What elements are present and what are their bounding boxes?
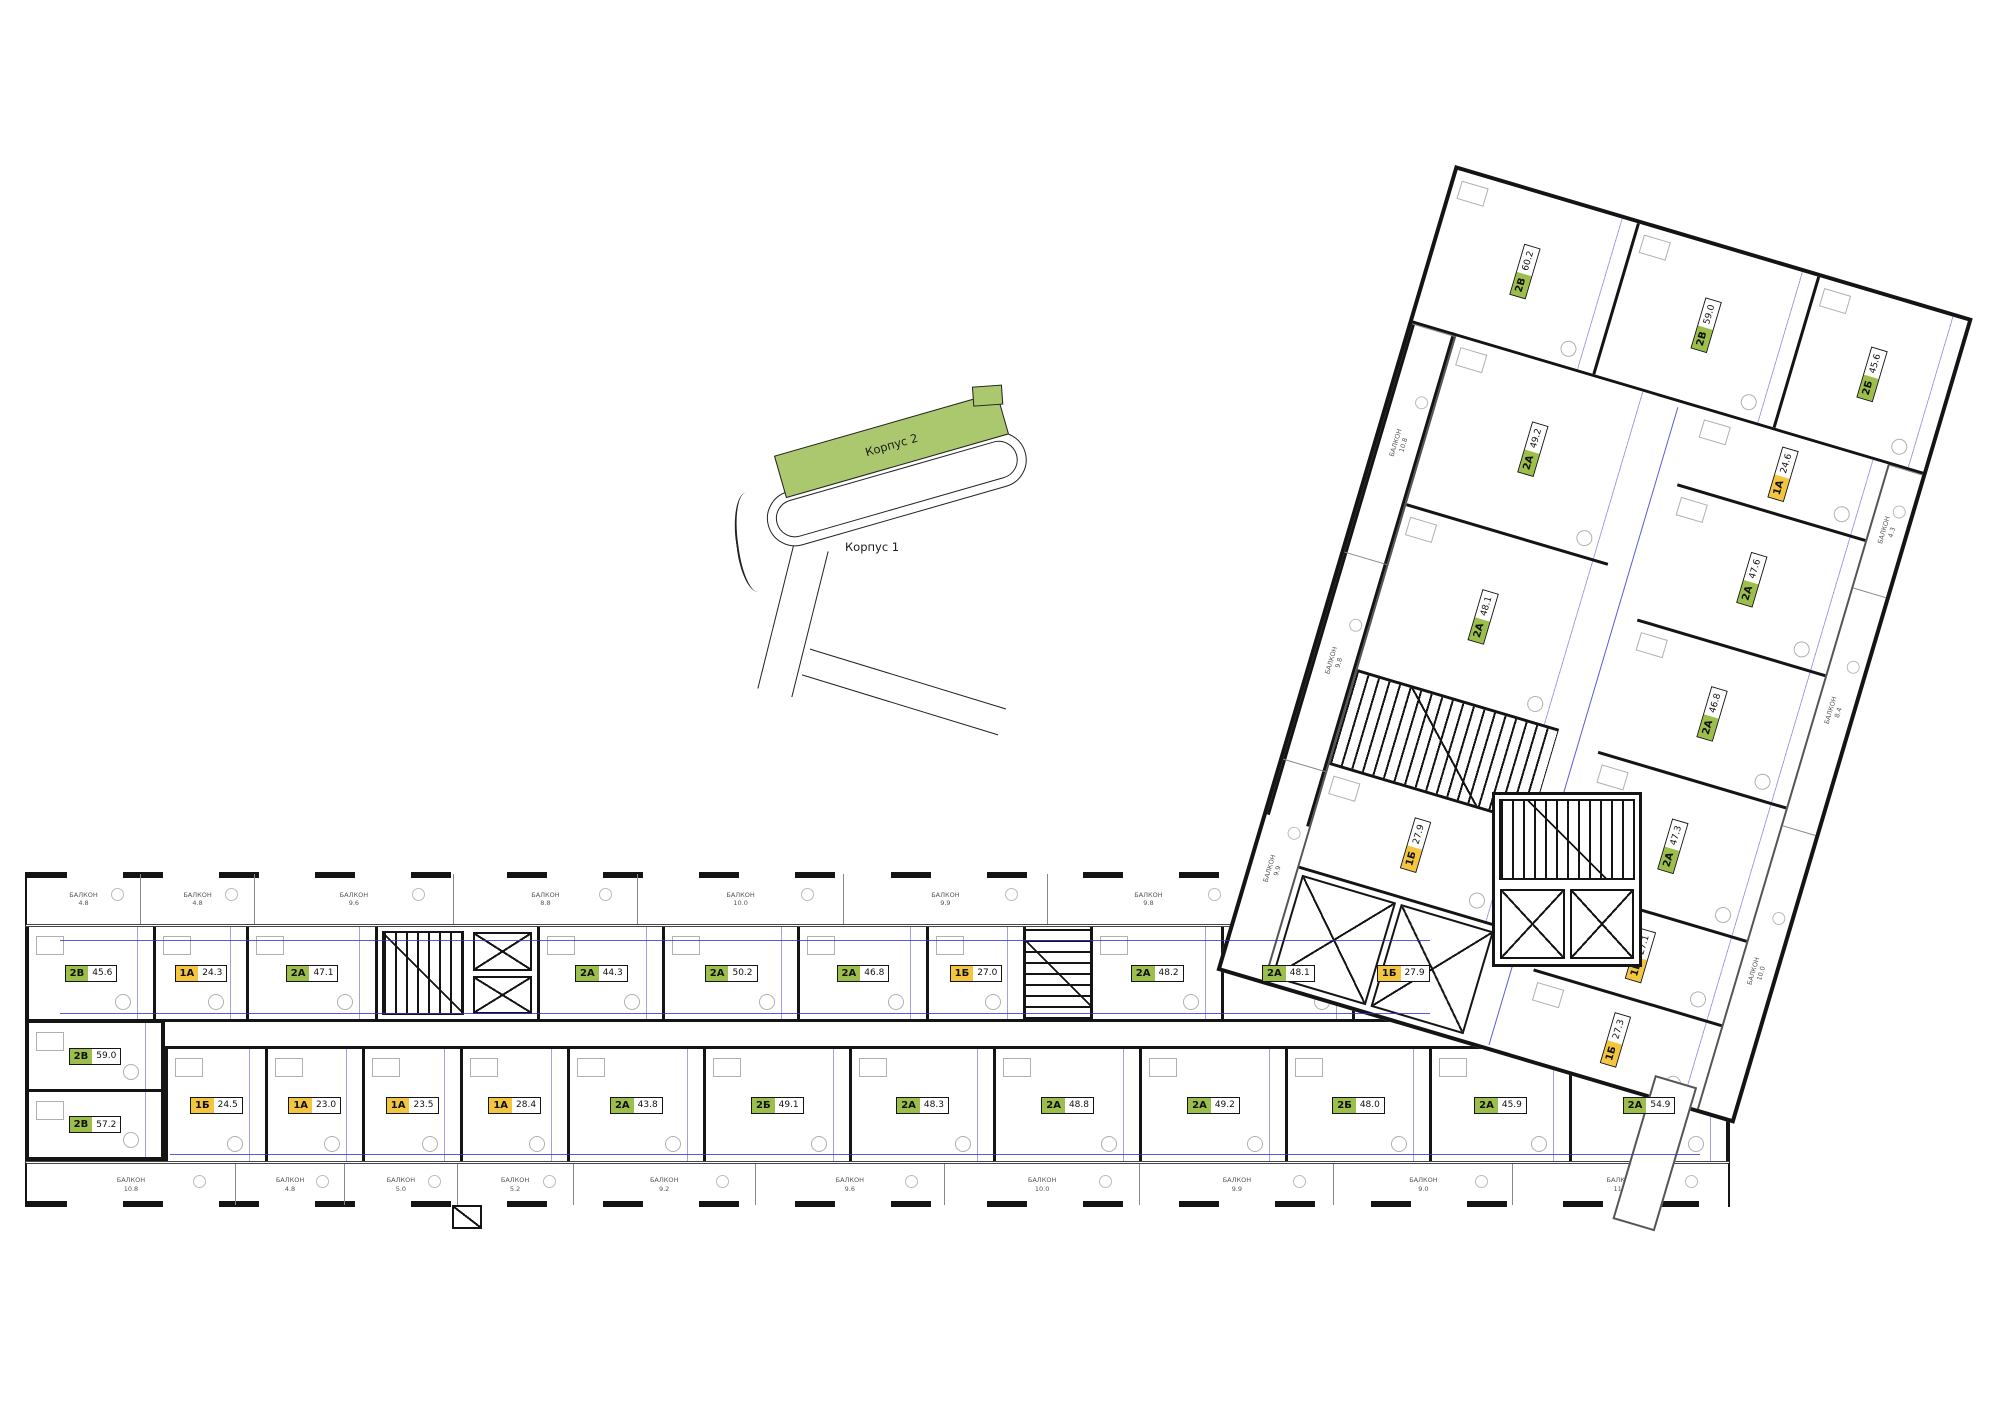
apartment-type-label: 2В xyxy=(66,966,89,981)
apartment-badge: 2А49.2 xyxy=(1188,1098,1239,1113)
apartment-type-label: 2Б xyxy=(1857,375,1878,401)
apartment-area-label: 24.5 xyxy=(214,1098,242,1113)
apartment-type-label: 2А xyxy=(1658,847,1679,873)
korpus-2-label: Корпус 2 xyxy=(864,431,920,459)
apartment-type-label: 2А xyxy=(897,1098,920,1113)
apartment-badge: 1А23.5 xyxy=(387,1098,438,1113)
apartment-badge: 2А48.1 xyxy=(1468,591,1497,644)
apartment-badge: 1Б27.3 xyxy=(1601,1014,1630,1067)
apartment-badge: 1Б27.9 xyxy=(1378,966,1429,981)
balcony-label: БАЛКОН9.0 xyxy=(1409,1176,1437,1192)
apartment-area-label: 48.2 xyxy=(1155,966,1183,981)
korpus-1-label: Корпус 1 xyxy=(845,540,899,554)
apartment-type-label: 2А xyxy=(287,966,310,981)
apartment-area-label: 48.0 xyxy=(1356,1098,1384,1113)
apartment-area-label: 27.9 xyxy=(1407,819,1429,850)
apartment-area-label: 24.3 xyxy=(198,966,226,981)
balcony: БАЛКОН9.9 xyxy=(843,874,1047,924)
elevator-bank xyxy=(1495,884,1639,964)
dimension-line xyxy=(60,940,1430,941)
apartment-badge: 2В45.6 xyxy=(66,966,117,981)
apartment-badge: 1А28.4 xyxy=(489,1098,540,1113)
apartment-area-label: 48.3 xyxy=(920,1098,948,1113)
balcony-label: БАЛКОН9.9 xyxy=(931,891,959,907)
balcony-label: БАЛКОН4.8 xyxy=(276,1176,304,1192)
apartment-type-label: 2В xyxy=(70,1049,93,1064)
apartment-area-label: 23.5 xyxy=(409,1098,437,1113)
apartment-badge: 2Б45.6 xyxy=(1857,348,1886,401)
apartment-unit[interactable]: 1А23.0 xyxy=(265,1049,362,1161)
apartment-area-label: 27.0 xyxy=(973,966,1001,981)
balcony-label: БАЛКОН4.8 xyxy=(183,891,211,907)
apartment-type-label: 2В xyxy=(70,1117,93,1132)
balcony: БАЛКОН4.8 xyxy=(140,874,254,924)
apartment-area-label: 46.8 xyxy=(860,966,888,981)
balcony: БАЛКОН8.8 xyxy=(453,874,638,924)
apartment-badge: 1А23.0 xyxy=(289,1098,340,1113)
apartment-area-label: 46.8 xyxy=(1704,687,1726,718)
elevator[interactable] xyxy=(1570,889,1635,959)
balcony: БАЛКОН5.0 xyxy=(344,1164,457,1205)
balcony-label: БАЛКОН10.0 xyxy=(1745,957,1769,989)
balcony-label: БАЛКОН9.6 xyxy=(340,891,368,907)
apartment-area-label: 47.3 xyxy=(1664,820,1686,851)
balcony-label: БАЛКОН9.6 xyxy=(836,1176,864,1192)
balcony-label: БАЛКОН4.3 xyxy=(1876,515,1900,547)
apartment-area-label: 45.6 xyxy=(1864,348,1886,379)
apartment-type-label: 1Б xyxy=(191,1098,214,1113)
apartment-badge: 2А45.9 xyxy=(1475,1098,1526,1113)
apartment-unit[interactable]: 2А43.8 xyxy=(567,1049,703,1161)
apartment-type-label: 2В xyxy=(1511,272,1532,298)
apartment-badge: 2В59.0 xyxy=(70,1049,121,1064)
staircase[interactable] xyxy=(1499,799,1635,880)
apartment-badge: 2А50.2 xyxy=(706,966,757,981)
balcony: БАЛКОН9.2 xyxy=(573,1164,755,1205)
apartment-area-label: 45.6 xyxy=(88,966,116,981)
apartment-unit[interactable]: 2А48.8 xyxy=(993,1049,1139,1161)
apartment-badge: 1Б27.0 xyxy=(951,966,1002,981)
apartment-area-label: 23.0 xyxy=(312,1098,340,1113)
balcony-label: БАЛКОН9.2 xyxy=(650,1176,678,1192)
apartment-unit[interactable]: 2Б48.0 xyxy=(1285,1049,1429,1161)
dimension-line xyxy=(170,1154,1700,1155)
apartment-type-label: 2Б xyxy=(752,1098,775,1113)
apartment-type-label: 2А xyxy=(1263,966,1286,981)
apartment-unit[interactable]: 2А49.2 xyxy=(1139,1049,1285,1161)
balcony: БАЛКОН4.8 xyxy=(235,1164,344,1205)
apartment-type-label: 2А xyxy=(1132,966,1155,981)
apartment-badge: 2А46.8 xyxy=(1697,687,1726,740)
dimension-line xyxy=(60,1013,1430,1014)
apartment-area-label: 59.0 xyxy=(92,1049,120,1064)
balcony: БАЛКОН9.0 xyxy=(1333,1164,1512,1205)
apartment-type-label: 2А xyxy=(838,966,861,981)
balcony: БАЛКОН4.8 xyxy=(27,874,140,924)
apartment-badge: 1Б24.5 xyxy=(191,1098,242,1113)
apartment-type-label: 1Б xyxy=(1401,846,1422,872)
balcony-label: БАЛКОН9.9 xyxy=(1262,854,1286,886)
apartment-area-label: 54.9 xyxy=(1646,1098,1674,1113)
apartment-badge: 2В57.2 xyxy=(70,1117,121,1132)
apartment-type-label: 2Б xyxy=(1333,1098,1356,1113)
balcony-label: БАЛКОН10.8 xyxy=(117,1176,145,1192)
apartment-badge: 2А48.1 xyxy=(1263,966,1314,981)
balcony-label: БАЛКОН10.0 xyxy=(726,891,754,907)
apartment-area-label: 24.6 xyxy=(1775,447,1797,478)
balcony-label: БАЛКОН10.8 xyxy=(1388,428,1412,460)
apartment-area-label: 27.3 xyxy=(1607,1014,1629,1045)
apartment-badge: 1Б27.9 xyxy=(1401,819,1430,872)
left-end-apartments: 2В59.02В57.2 xyxy=(25,1019,165,1161)
apartment-type-label: 2А xyxy=(611,1098,634,1113)
bottom-apartment-row: 1Б24.51А23.01А23.51А28.42А43.82Б49.12А48… xyxy=(165,1049,1730,1161)
elevator[interactable] xyxy=(473,932,533,971)
apartment-unit[interactable]: 1Б24.5 xyxy=(168,1049,265,1161)
apartment-area-label: 57.2 xyxy=(92,1117,120,1132)
apartment-area-label: 28.4 xyxy=(512,1098,540,1113)
apartment-area-label: 48.8 xyxy=(1065,1098,1093,1113)
apartment-type-label: 1Б xyxy=(1378,966,1401,981)
apartment-area-label: 44.3 xyxy=(599,966,627,981)
apartment-type-label: 1А xyxy=(387,1098,410,1113)
apartment-unit[interactable]: 2А48.3 xyxy=(849,1049,994,1161)
apartment-badge: 2А46.8 xyxy=(838,966,889,981)
apartment-badge: 2А47.6 xyxy=(1737,554,1766,607)
apartment-badge: 2А43.8 xyxy=(611,1098,662,1113)
balcony: БАЛКОН9.6 xyxy=(755,1164,944,1205)
apartment-area-label: 49.1 xyxy=(775,1098,803,1113)
apartment-type-label: 2А xyxy=(1188,1098,1211,1113)
apartment-area-label: 60.2 xyxy=(1517,245,1539,276)
apartment-type-label: 2А xyxy=(1042,1098,1065,1113)
apartment-type-label: 2А xyxy=(576,966,599,981)
balcony: БАЛКОН10.8 xyxy=(27,1164,235,1205)
staircase[interactable] xyxy=(382,931,463,1015)
apartment-type-label: 1А xyxy=(176,966,199,981)
balcony-label: БАЛКОН5.2 xyxy=(501,1176,529,1192)
balcony-label: БАЛКОН5.0 xyxy=(387,1176,415,1192)
balcony: БАЛКОН10.0 xyxy=(944,1164,1140,1205)
apartment-area-label: 49.2 xyxy=(1211,1098,1239,1113)
apartment-area-label: 50.2 xyxy=(728,966,756,981)
apartment-area-label: 49.2 xyxy=(1524,423,1546,454)
apartment-area-label: 45.9 xyxy=(1498,1098,1526,1113)
apartment-type-label: 2А xyxy=(1468,618,1489,644)
apartment-badge: 2А44.3 xyxy=(576,966,627,981)
angled-wing: 2В60.22В59.02Б45.6 БАЛКОН10.8БАЛКОН9.8БА… xyxy=(1216,165,1972,1124)
apartment-area-label: 59.0 xyxy=(1698,299,1720,330)
apartment-badge: 2В59.0 xyxy=(1692,299,1721,352)
apartment-unit[interactable]: 1А23.5 xyxy=(362,1049,460,1161)
apartment-area-label: 43.8 xyxy=(634,1098,662,1113)
apartment-type-label: 1Б xyxy=(951,966,974,981)
apartment-unit[interactable]: 1А28.4 xyxy=(460,1049,567,1161)
apartment-area-label: 48.1 xyxy=(1286,966,1314,981)
balcony-label: БАЛКОН9.8 xyxy=(1134,891,1162,907)
balcony: БАЛКОН10.0 xyxy=(637,874,843,924)
elevator[interactable] xyxy=(473,976,533,1015)
apartment-badge: 2Б48.0 xyxy=(1333,1098,1384,1113)
apartment-badge: 2А48.2 xyxy=(1132,966,1183,981)
apartment-unit[interactable]: 2В59.0 xyxy=(29,1023,161,1089)
entrance-canopy xyxy=(452,1205,482,1229)
apartment-area-label: 47.6 xyxy=(1743,554,1765,585)
apartment-type-label: 2А xyxy=(1624,1098,1647,1113)
apartment-type-label: 1Б xyxy=(1601,1040,1622,1066)
apartment-type-label: 2А xyxy=(1518,450,1539,476)
apartment-area-label: 47.1 xyxy=(309,966,337,981)
apartment-unit[interactable]: 2Б49.1 xyxy=(703,1049,849,1161)
apartment-badge: 2В60.2 xyxy=(1511,245,1540,298)
locator-korpus-1-wing xyxy=(802,649,1006,736)
balcony: БАЛКОН9.8 xyxy=(1047,874,1249,924)
apartment-badge: 2А49.2 xyxy=(1518,423,1547,476)
apartment-type-label: 1А xyxy=(289,1098,312,1113)
corner-stair-elevator-core xyxy=(1492,792,1642,967)
apartment-badge: 2А47.1 xyxy=(287,966,338,981)
apartment-unit[interactable]: 2В57.2 xyxy=(29,1089,161,1157)
bottom-balcony-strip: БАЛКОН10.8БАЛКОН4.8БАЛКОН5.0БАЛКОН5.2БАЛ… xyxy=(25,1161,1730,1207)
apartment-area-label: 48.1 xyxy=(1475,591,1497,622)
apartment-badge: 2А48.8 xyxy=(1042,1098,1093,1113)
elevator[interactable] xyxy=(1500,889,1565,959)
apartment-badge: 2А47.3 xyxy=(1658,820,1687,873)
apartment-badge: 2А54.9 xyxy=(1624,1098,1675,1113)
balcony-label: БАЛКОН9.8 xyxy=(1323,646,1347,678)
apartment-badge: 1А24.6 xyxy=(1768,447,1797,500)
balcony-label: БАЛКОН8.8 xyxy=(531,891,559,907)
apartment-type-label: 1А xyxy=(489,1098,512,1113)
apartment-type-label: 2А xyxy=(706,966,729,981)
apartment-badge: 1А24.3 xyxy=(176,966,227,981)
apartment-badge: 2А48.3 xyxy=(897,1098,948,1113)
apartment-badge: 2Б49.1 xyxy=(752,1098,803,1113)
apartment-type-label: 2В xyxy=(1692,326,1713,352)
balcony-label: БАЛКОН8.4 xyxy=(1823,696,1847,728)
apartment-area-label: 27.9 xyxy=(1401,966,1429,981)
floor-plan: Корпус 2 Корпус 1 БАЛКОН4.8БАЛКОН4.8БАЛК… xyxy=(0,0,2000,1415)
balcony-label: БАЛКОН10.0 xyxy=(1028,1176,1056,1192)
balcony: БАЛКОН5.2 xyxy=(457,1164,573,1205)
balcony-label: БАЛКОН4.8 xyxy=(69,891,97,907)
balcony: БАЛКОН9.6 xyxy=(254,874,453,924)
balcony-label: БАЛКОН9.9 xyxy=(1223,1176,1251,1192)
apartment-type-label: 2А xyxy=(1737,581,1758,607)
apartment-type-label: 2А xyxy=(1475,1098,1498,1113)
balcony: БАЛКОН9.9 xyxy=(1139,1164,1333,1205)
